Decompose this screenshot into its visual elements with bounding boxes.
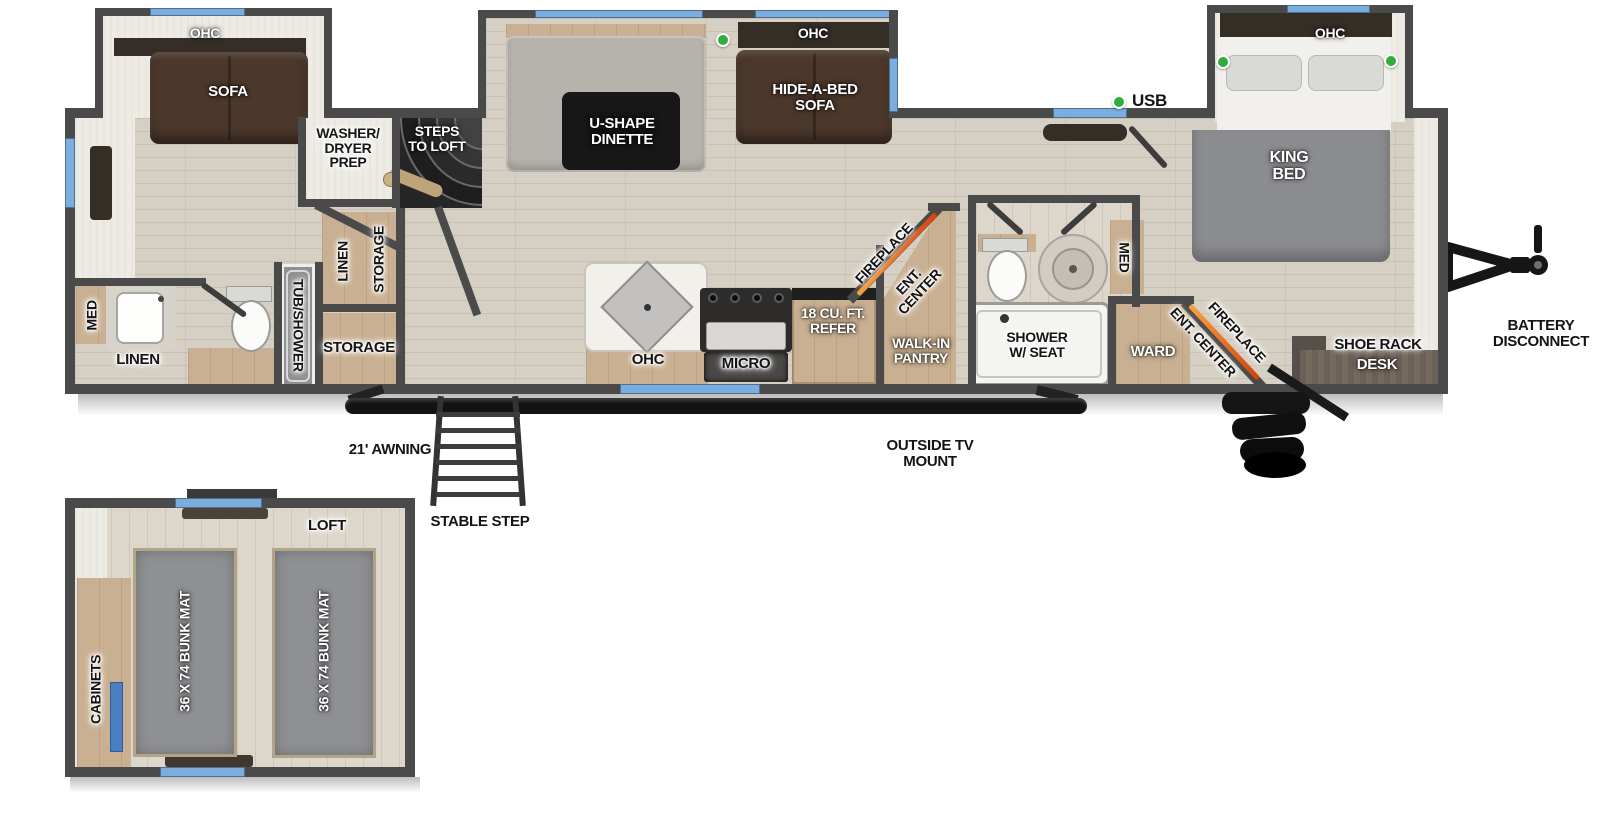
label-outside-tv: OUTSIDE TV MOUNT xyxy=(884,438,976,470)
ladder-rung xyxy=(436,476,520,481)
shower-head xyxy=(1000,314,1009,323)
wall xyxy=(324,8,332,118)
wall xyxy=(245,767,415,777)
entry-step-base xyxy=(1244,452,1306,478)
wall xyxy=(298,199,400,207)
window xyxy=(65,138,75,208)
label-ward: WARD xyxy=(1122,344,1184,360)
burner xyxy=(708,293,718,303)
wall xyxy=(396,208,405,386)
wall xyxy=(889,112,898,118)
loft-shadow xyxy=(70,777,420,793)
wall xyxy=(332,108,478,118)
oven-front xyxy=(706,322,786,350)
label-desk: DESK xyxy=(1346,357,1408,373)
usb-dot xyxy=(716,33,730,47)
label-shower-seat: SHOWER W/ SEAT xyxy=(998,330,1076,359)
label-tub-shower: TUB/SHOWER xyxy=(291,269,306,381)
label-bunk-mat-right: 36 X 74 BUNK MAT xyxy=(317,574,332,728)
label-awning: 21' AWNING xyxy=(342,442,438,458)
window xyxy=(150,8,245,16)
wall xyxy=(65,108,75,138)
label-micro: MICRO xyxy=(706,356,786,372)
burner xyxy=(730,293,740,303)
window xyxy=(755,10,890,18)
label-shoe-rack: SHOE RACK xyxy=(1330,337,1426,353)
window xyxy=(175,498,262,508)
wall xyxy=(245,8,332,16)
wall xyxy=(1132,195,1140,307)
wall xyxy=(968,195,1140,203)
label-rear-bath-linen: LINEN xyxy=(94,352,182,368)
roof-vent xyxy=(187,489,277,498)
wall xyxy=(315,262,323,388)
entry-step xyxy=(1222,392,1310,414)
wall xyxy=(968,195,976,388)
wall xyxy=(1108,296,1116,386)
label-king-ohc: OHC xyxy=(1304,26,1356,41)
wall xyxy=(1207,5,1215,118)
window xyxy=(620,384,760,394)
refrigerator xyxy=(792,288,876,384)
wall xyxy=(392,118,400,208)
loft-cabinet-door xyxy=(110,682,123,752)
rv-floorplan: OHC SOFA WASHER/ DRYER PREP STEPS TO LOF… xyxy=(0,0,1600,840)
label-closet-storage: STORAGE xyxy=(372,209,387,309)
rear-bath-cabinet xyxy=(188,348,276,384)
wall xyxy=(316,304,404,312)
rear-sink-faucet xyxy=(158,296,164,302)
tv xyxy=(90,146,112,220)
loft-pad xyxy=(182,508,268,519)
usb-dot xyxy=(1216,55,1230,69)
wall xyxy=(760,384,1448,394)
wall xyxy=(65,498,175,508)
wall xyxy=(274,262,282,388)
label-battery-disconnect: BATTERY DISCONNECT xyxy=(1484,318,1598,350)
ladder-rung xyxy=(436,492,520,497)
label-refer: 18 CU. FT. REFER xyxy=(800,306,866,335)
tv-console xyxy=(1043,124,1127,141)
label-stable-step: STABLE STEP xyxy=(430,514,530,530)
label-rear-bath-med: MED xyxy=(85,285,100,345)
label-loft: LOFT xyxy=(298,518,356,534)
label-steps-to-loft: STEPS TO LOFT xyxy=(408,124,466,153)
label-rear-slide-ohc: OHC xyxy=(176,26,234,41)
wall xyxy=(478,10,486,118)
wall xyxy=(65,208,75,394)
kitchen-sink-drain xyxy=(644,304,651,311)
window xyxy=(160,767,245,777)
pillow xyxy=(1308,55,1384,91)
label-closet-linen: LINEN xyxy=(336,219,351,303)
label-bath-med: MED xyxy=(1117,227,1132,287)
wall xyxy=(95,8,150,16)
label-washer-dryer: WASHER/ DRYER PREP xyxy=(312,126,384,170)
burner xyxy=(774,293,784,303)
ladder-rung xyxy=(436,412,520,417)
ladder-rung xyxy=(436,428,520,433)
hitch xyxy=(1448,215,1558,315)
window xyxy=(1053,108,1127,118)
wall xyxy=(65,767,160,777)
wall xyxy=(262,498,415,508)
label-dinette-ohc: OHC xyxy=(790,26,836,41)
label-rear-sofa: SOFA xyxy=(192,84,264,100)
wall xyxy=(897,108,1053,118)
label-walk-in-pantry: WALK-IN PANTRY xyxy=(886,336,956,365)
wall xyxy=(405,498,415,777)
wall xyxy=(1207,5,1287,13)
label-cabinets: CABINETS xyxy=(89,639,104,739)
wall xyxy=(95,8,103,118)
wall xyxy=(65,384,620,394)
wall xyxy=(889,10,898,58)
wall xyxy=(65,498,75,777)
wall xyxy=(703,10,755,18)
window xyxy=(889,58,898,112)
label-dinette: U-SHAPE DINETTE xyxy=(566,116,678,148)
rear-sink xyxy=(116,292,164,344)
pillow xyxy=(1226,55,1302,91)
ladder-rung xyxy=(436,444,520,449)
wall xyxy=(478,10,535,18)
label-kitchen-ohc: OHC xyxy=(612,352,684,368)
ladder-rung xyxy=(436,460,520,465)
label-hide-a-bed: HIDE-A-BED SOFA xyxy=(756,82,874,114)
label-storage-room: STORAGE xyxy=(320,340,398,356)
wall xyxy=(298,117,306,207)
wall xyxy=(1405,5,1413,118)
label-usb: USB xyxy=(1132,92,1188,110)
bath-sink-drain xyxy=(1069,265,1077,273)
label-king-bed: KING BED xyxy=(1262,150,1316,184)
wall xyxy=(1108,296,1194,304)
wall xyxy=(1438,108,1448,394)
usb-dot xyxy=(1112,95,1126,109)
burner xyxy=(752,293,762,303)
window xyxy=(535,10,703,18)
bath-toilet xyxy=(987,250,1027,302)
usb-dot xyxy=(1384,54,1398,68)
window xyxy=(1287,5,1370,13)
label-bunk-mat-left: 36 X 74 BUNK MAT xyxy=(178,574,193,728)
